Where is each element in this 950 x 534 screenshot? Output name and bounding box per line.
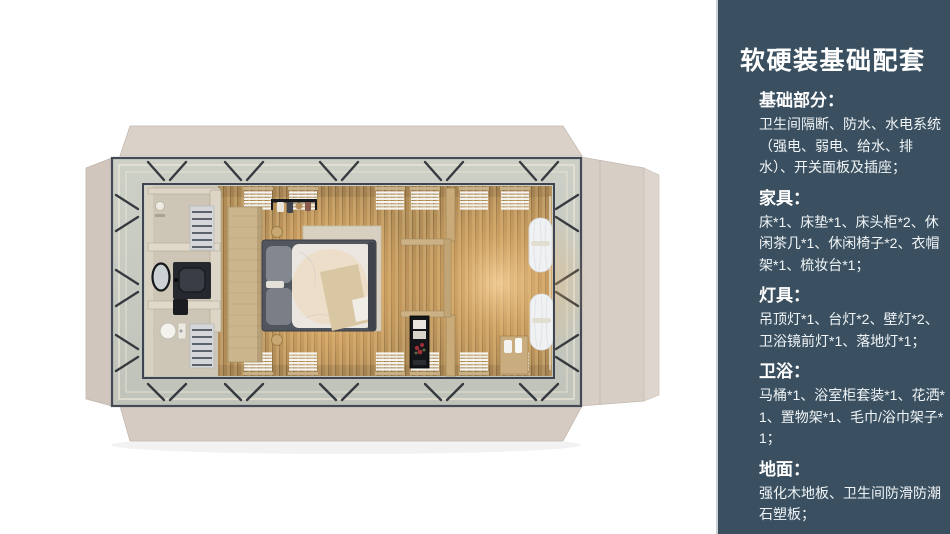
partition-wall-bottom (446, 315, 455, 376)
section-bathroom-heading: 卫浴： (759, 362, 946, 382)
curtain-bottom (530, 294, 553, 350)
section-basics-heading: 基础部分： (759, 91, 946, 111)
vanity-sink (179, 268, 205, 292)
slide: 软硬装基础配套 基础部分： 卫生间隔断、防水、水电系统（强电、弱电、给水、排水）… (0, 0, 950, 534)
display-cabinet (410, 316, 429, 368)
bathroom-top-wall (148, 188, 220, 194)
flap-top (120, 126, 582, 156)
bedside-table-bottom (272, 335, 283, 346)
section-furniture: 家具： 床*1、床垫*1、床头柜*2、休闲茶几*1、休闲椅子*2、衣帽架*1、梳… (759, 189, 946, 277)
panel-body: 基础部分： 卫生间隔断、防水、水电系统（强电、弱电、给水、排水）、开关面板及插座… (759, 91, 944, 526)
section-bathroom-body: 马桶*1、浴室柜套装*1、花洒*1、置物架*1、毛巾/浴巾架子*1； (759, 385, 946, 450)
towel-bench (500, 336, 528, 374)
section-flooring: 地面： 强化木地板、卫生间防滑防潮石塑板； (759, 460, 946, 526)
section-furniture-heading: 家具： (759, 189, 946, 209)
bedside-table-top (272, 227, 283, 238)
bathroom (145, 186, 221, 376)
pillow-top (266, 246, 292, 283)
section-flooring-body: 强化木地板、卫生间防滑防潮石塑板； (759, 483, 946, 526)
curtain-top (529, 218, 552, 272)
hanging-garment-white (277, 202, 284, 212)
section-flooring-heading: 地面： (759, 460, 946, 480)
section-lighting-body: 吊顶灯*1、台灯*2、壁灯*2、卫浴镜前灯*1、落地灯*1； (759, 309, 946, 352)
shelf-post (444, 239, 451, 317)
partition-wall-top (446, 188, 455, 241)
hanging-garment-brown (305, 202, 311, 211)
hat (296, 203, 303, 210)
vanity-mirror (153, 264, 170, 291)
shower-drain (155, 214, 165, 217)
vanity-stool (173, 299, 188, 315)
vanity-faucet (174, 278, 178, 282)
dressing-table-panel (228, 207, 262, 362)
shower-head (156, 202, 165, 211)
section-bathroom: 卫浴： 马桶*1、浴室柜套装*1、花洒*1、置物架*1、毛巾/浴巾架子*1； (759, 362, 946, 450)
hanging-garment-dark (287, 202, 293, 213)
shelf-top (401, 239, 451, 245)
section-lighting-heading: 灯具： (759, 286, 946, 306)
info-panel: 软硬装基础配套 基础部分： 卫生间隔断、防水、水电系统（强电、弱电、给水、排水）… (716, 0, 950, 534)
lamp-glow-lounge (406, 191, 590, 375)
flap-right (581, 157, 644, 406)
flap-bottom (120, 406, 582, 441)
panel-title: 软硬装基础配套 (740, 46, 942, 76)
footboard (368, 242, 375, 330)
section-basics-body: 卫生间隔断、防水、水电系统（强电、弱电、给水、排水）、开关面板及插座； (759, 114, 946, 179)
pillow-bottom (266, 288, 292, 325)
toilet (160, 323, 176, 339)
flap-left (86, 158, 112, 406)
towel-rack-top (190, 206, 214, 250)
flap-right-outer (644, 168, 659, 401)
toilet-flush-button (180, 330, 183, 333)
floorplan-render (0, 0, 716, 534)
headboard-runner (266, 281, 284, 288)
section-furniture-body: 床*1、床垫*1、床头柜*2、休闲茶几*1、休闲椅子*2、衣帽架*1、梳妆台*1… (759, 212, 946, 277)
towel-rack-bottom (190, 324, 214, 368)
bed (262, 226, 381, 346)
floorplan-render-area (0, 0, 716, 534)
room-interior (143, 184, 590, 382)
section-basics: 基础部分： 卫生间隔断、防水、水电系统（强电、弱电、给水、排水）、开关面板及插座… (759, 91, 946, 179)
section-lighting: 灯具： 吊顶灯*1、台灯*2、壁灯*2、卫浴镜前灯*1、落地灯*1； (759, 286, 946, 352)
